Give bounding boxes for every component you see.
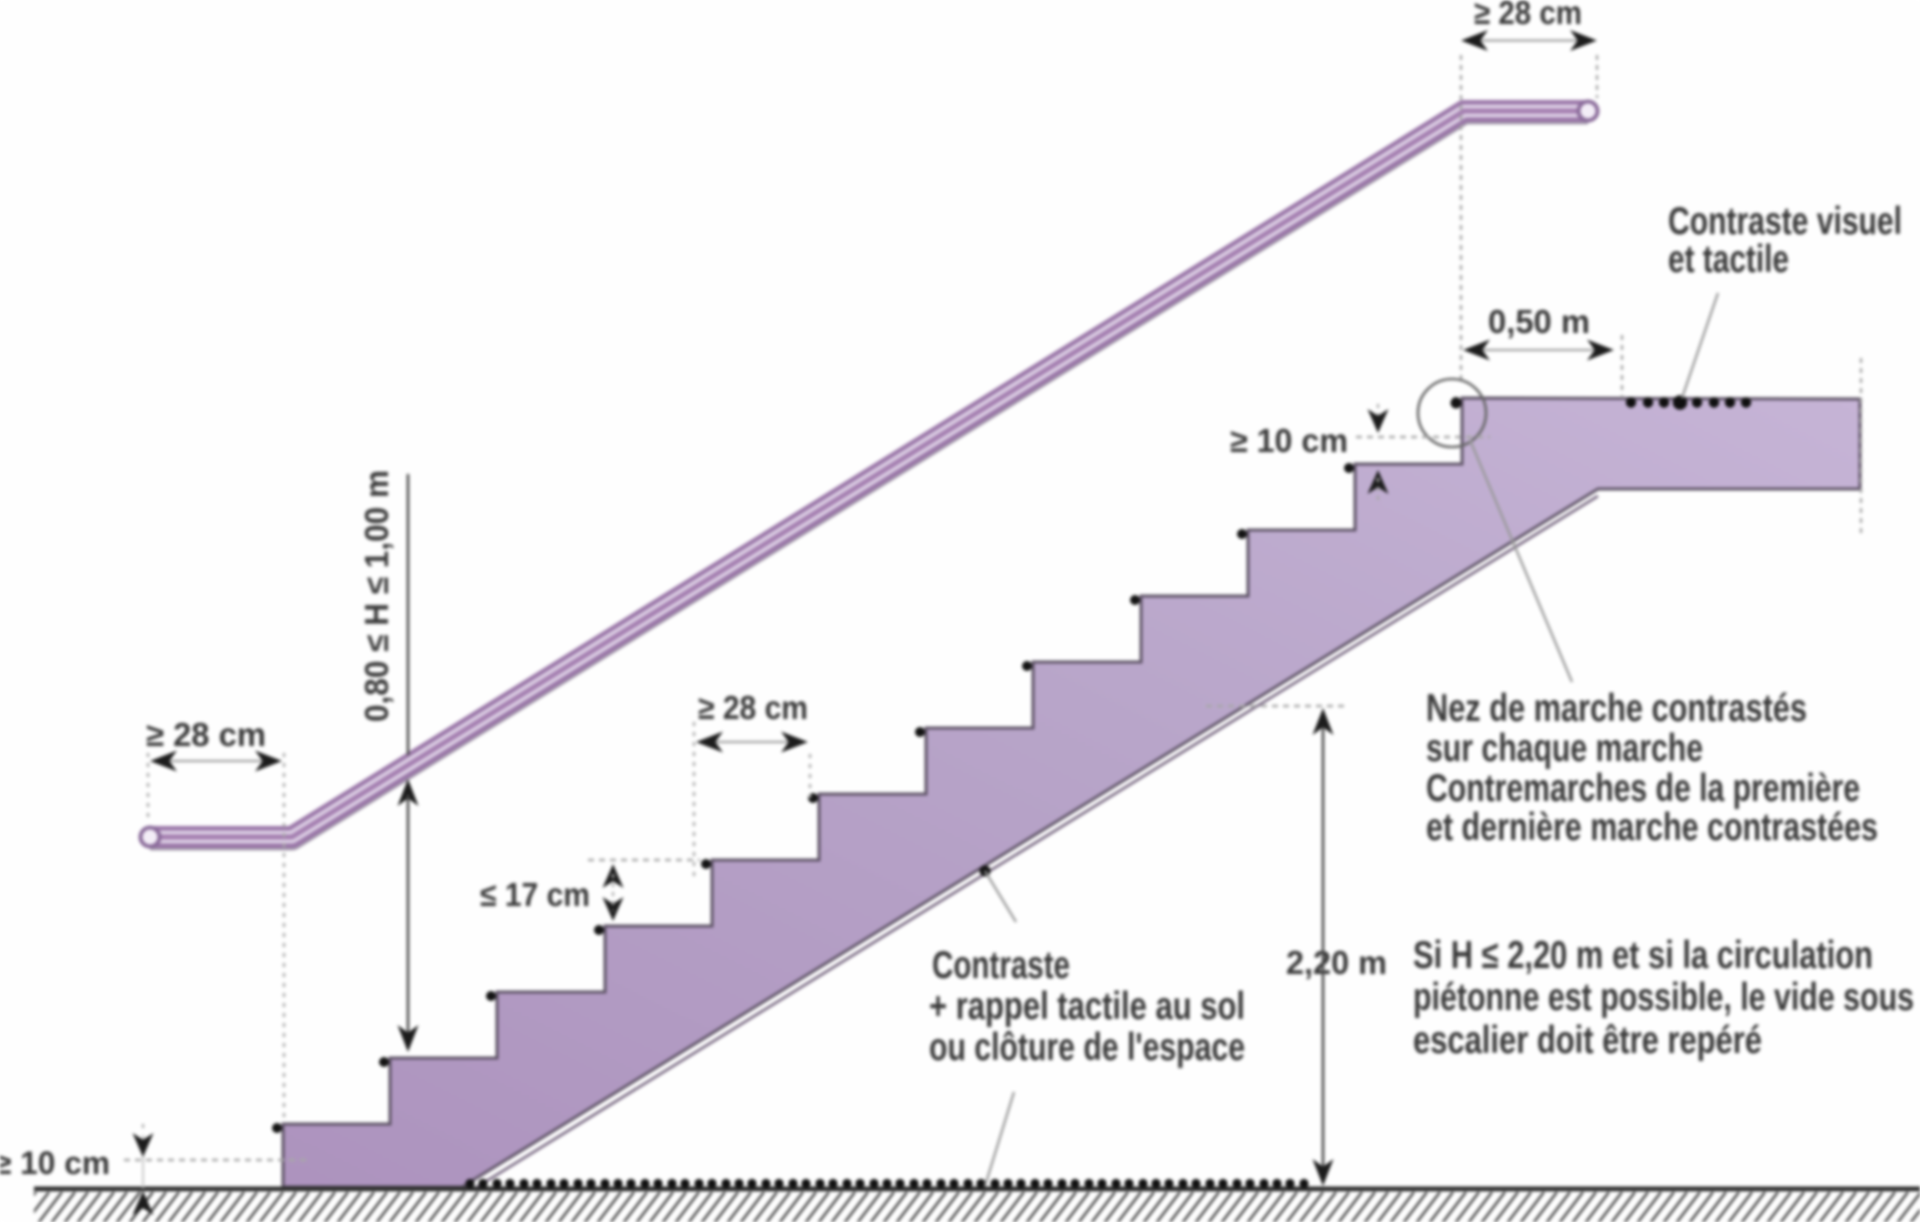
svg-text:≥ 28 cm: ≥ 28 cm <box>698 689 808 726</box>
svg-text:≥ 28 cm: ≥ 28 cm <box>1474 0 1582 31</box>
svg-text:2,20 m: 2,20 m <box>1286 944 1387 981</box>
svg-text:et dernière marche contrastées: et dernière marche contrastées <box>1426 806 1878 849</box>
svg-text:sur chaque marche: sur chaque marche <box>1426 727 1703 770</box>
svg-text:Si H ≤ 2,20 m et si la circula: Si H ≤ 2,20 m et si la circulation <box>1413 934 1873 977</box>
svg-text:Nez de marche contrastés: Nez de marche contrastés <box>1426 687 1807 730</box>
svg-text:≤ 17 cm: ≤ 17 cm <box>480 876 590 913</box>
svg-text:Contraste visuel: Contraste visuel <box>1668 200 1902 243</box>
svg-text:0,80 ≤ H ≤ 1,00 m: 0,80 ≤ H ≤ 1,00 m <box>358 470 395 722</box>
svg-text:Contremarches de la première: Contremarches de la première <box>1426 767 1860 810</box>
svg-text:0,50 m: 0,50 m <box>1488 303 1590 340</box>
svg-text:piétonne est possible, le vide: piétonne est possible, le vide sous <box>1413 976 1914 1019</box>
svg-text:Contraste: Contraste <box>932 944 1070 987</box>
svg-text:≥ 10 cm: ≥ 10 cm <box>0 1145 110 1181</box>
svg-text:+ rappel tactile au sol: + rappel tactile au sol <box>929 985 1245 1028</box>
svg-text:ou clôture de l'espace: ou clôture de l'espace <box>929 1026 1245 1069</box>
svg-text:≥ 10 cm: ≥ 10 cm <box>1230 422 1348 459</box>
svg-text:et tactile: et tactile <box>1668 238 1789 281</box>
svg-text:escalier doit être repéré: escalier doit être repéré <box>1413 1019 1762 1062</box>
svg-text:≥ 28 cm: ≥ 28 cm <box>146 716 266 753</box>
